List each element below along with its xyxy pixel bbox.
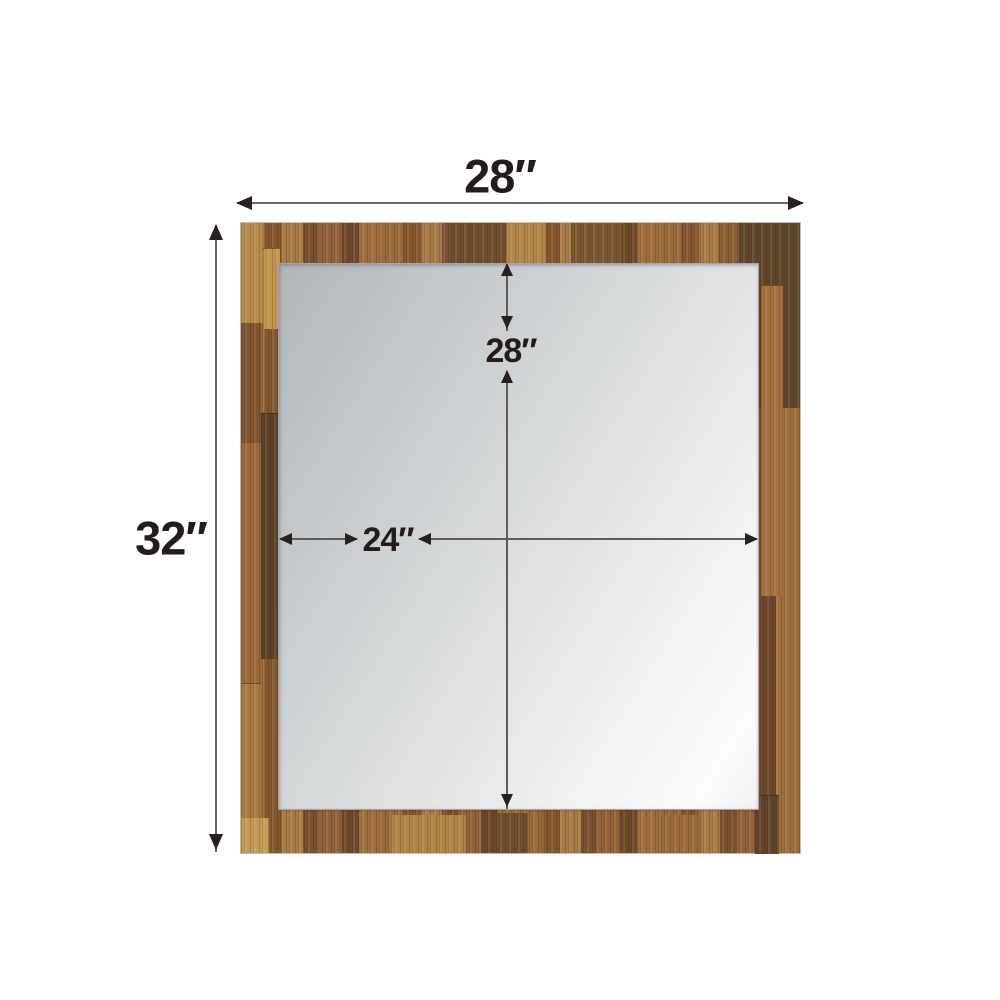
mirror-height-label: 28″: [485, 334, 536, 368]
wood-segment: [496, 813, 528, 853]
wood-segment: [761, 285, 783, 596]
wood-segment: [241, 223, 263, 323]
wood-segment: [506, 223, 546, 263]
wood-segment: [719, 223, 739, 263]
overall-height-label: 32″: [135, 515, 207, 562]
mirror-height-arrow-upper-segment: [506, 264, 508, 331]
wood-segment: [241, 323, 261, 443]
overall-width-label: 28″: [464, 153, 536, 200]
wood-segment: [241, 818, 269, 853]
mirror-dimension-diagram: 28″ 32″ 28″ 24″: [0, 0, 1000, 1000]
overall-height-double-arrow: [215, 225, 217, 852]
wood-segment: [241, 683, 261, 819]
wood-segment: [391, 815, 466, 853]
mirror-width-arrow-right-segment: [419, 538, 757, 540]
wood-segment: [661, 815, 701, 853]
mirror-width-arrow-left-segment: [280, 538, 357, 540]
mirror-height-arrow-lower-segment: [506, 371, 508, 809]
wood-segment: [571, 223, 621, 263]
wood-segment: [451, 223, 506, 263]
mirror-width-label: 24″: [362, 523, 413, 557]
